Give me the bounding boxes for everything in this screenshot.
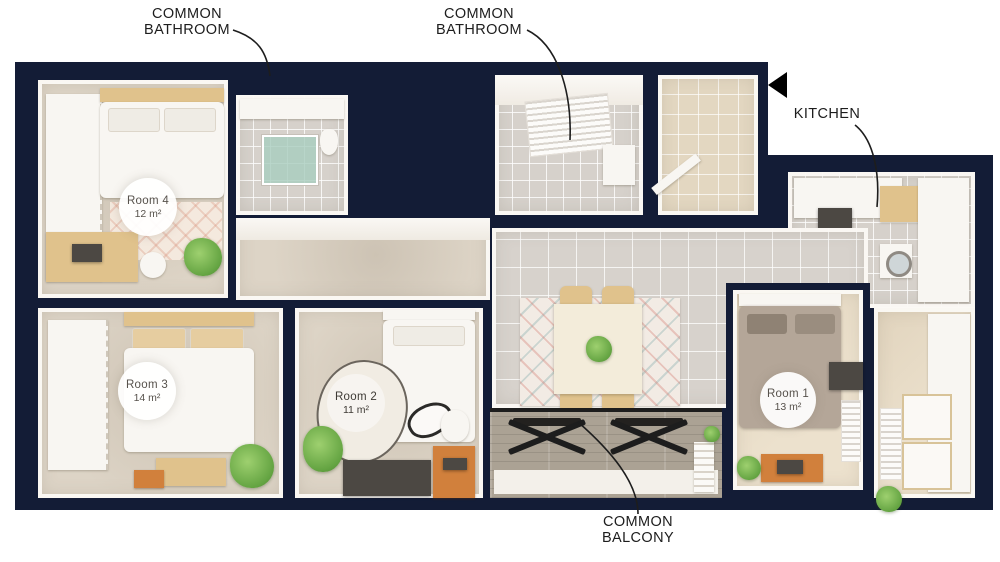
room1-desk-items xyxy=(777,460,803,474)
room2-badge: Room 2 11 m² xyxy=(327,374,385,432)
common-balcony xyxy=(490,412,722,498)
room3-area: 14 m² xyxy=(134,392,161,404)
room1-plant-icon xyxy=(737,456,761,480)
floor-plan-image: Room 4 12 m² xyxy=(0,0,1000,562)
entrance-door-leaf xyxy=(651,153,701,195)
hallway-door-panel-2 xyxy=(902,442,952,490)
room1-badge: Room 1 13 m² xyxy=(760,372,816,428)
entrance-hall xyxy=(658,75,758,215)
room1-area: 13 m² xyxy=(775,401,802,413)
callout-common-bathroom-2: COMMON BATHROOM xyxy=(429,7,529,38)
room1-name: Room 1 xyxy=(767,388,809,400)
callout-common-balcony-line1: COMMON xyxy=(588,515,688,531)
callout-common-balcony-line2: BALCONY xyxy=(588,531,688,547)
room1-dark-unit xyxy=(829,362,863,390)
room4-monitor xyxy=(72,244,102,262)
corridor xyxy=(236,218,490,300)
room2-name: Room 2 xyxy=(335,391,377,403)
bathroom1-toilet xyxy=(320,129,338,155)
callout-kitchen: KITCHEN xyxy=(777,107,877,123)
room2-desk-items xyxy=(443,458,467,470)
balcony-lounge-chair-1 xyxy=(506,418,588,456)
callout-common-bathroom-1: COMMON BATHROOM xyxy=(137,7,237,38)
balcony-lower-floor xyxy=(494,470,718,494)
callout-common-bathroom-2-line2: BATHROOM xyxy=(429,23,529,39)
balcony-rail-top xyxy=(490,408,722,412)
room3-pillow-left xyxy=(132,328,186,350)
room4-bed-headboard xyxy=(100,88,224,102)
room4-badge: Room 4 12 m² xyxy=(119,178,177,236)
room2-bed-headboard xyxy=(383,310,475,320)
hallway-radiator xyxy=(880,408,902,480)
room2-area: 11 m² xyxy=(343,404,369,416)
room3-bench xyxy=(156,458,226,486)
room2-plant-icon xyxy=(303,426,343,472)
room4-pillow-left xyxy=(108,108,160,132)
room1-pillow-right xyxy=(795,314,835,334)
balcony-plant-icon xyxy=(704,426,720,442)
room4-plant-icon xyxy=(184,238,222,276)
room4-chair xyxy=(140,252,166,278)
right-hallway xyxy=(874,308,975,498)
entrance-arrow-icon xyxy=(768,72,787,98)
room3-plant-icon xyxy=(230,444,274,488)
room3-pillow-right xyxy=(190,328,244,350)
bathroom1-counter xyxy=(240,99,344,119)
balcony-lounge-chair-2 xyxy=(608,418,690,456)
callout-common-bathroom-1-line2: BATHROOM xyxy=(137,23,237,39)
room-2: Room 2 11 m² xyxy=(295,308,483,498)
callout-common-bathroom-1-line1: COMMON xyxy=(137,7,237,23)
room3-wardrobe xyxy=(48,320,108,470)
room1-pillow-left xyxy=(747,314,787,334)
kitchen-cooktop xyxy=(818,208,852,228)
room-1: Room 1 13 m² xyxy=(726,283,870,497)
room3-bed-headboard xyxy=(124,312,254,326)
room4-area: 12 m² xyxy=(135,208,162,220)
hallway-plant-icon xyxy=(876,486,902,512)
room1-bed-headboard xyxy=(739,294,841,306)
hallway-door-panel-1 xyxy=(902,394,952,440)
balcony-ladder-shelf xyxy=(694,442,714,492)
room-4: Room 4 12 m² xyxy=(38,80,228,298)
room-3: Room 3 14 m² xyxy=(38,308,283,498)
bathroom2-fixture xyxy=(603,145,635,185)
room2-chair xyxy=(441,410,469,442)
callout-common-bathroom-2-line1: COMMON xyxy=(429,7,529,23)
room4-pillow-right xyxy=(164,108,216,132)
bathroom2-towel-radiator xyxy=(524,93,613,157)
room4-name: Room 4 xyxy=(127,195,169,207)
kitchen-tall-cabinets xyxy=(918,178,969,302)
room2-desk xyxy=(433,446,475,498)
room3-name: Room 3 xyxy=(126,379,168,391)
bathroom-2 xyxy=(495,75,643,215)
room2-pillow xyxy=(393,326,465,346)
bathroom1-shower xyxy=(262,135,318,185)
bathroom-1 xyxy=(236,95,348,215)
kitchen-wood-cabinet xyxy=(880,186,920,222)
room3-storage-box xyxy=(134,470,164,488)
callout-kitchen-label: KITCHEN xyxy=(777,107,877,123)
room3-badge: Room 3 14 m² xyxy=(118,362,176,420)
room2-dresser xyxy=(343,460,431,496)
corridor-wall-face xyxy=(236,218,490,240)
callout-common-balcony: COMMON BALCONY xyxy=(588,515,688,546)
dining-table-plant-icon xyxy=(586,336,612,362)
room1-radiator xyxy=(841,400,861,462)
kitchen-washer-door-icon xyxy=(886,251,912,277)
